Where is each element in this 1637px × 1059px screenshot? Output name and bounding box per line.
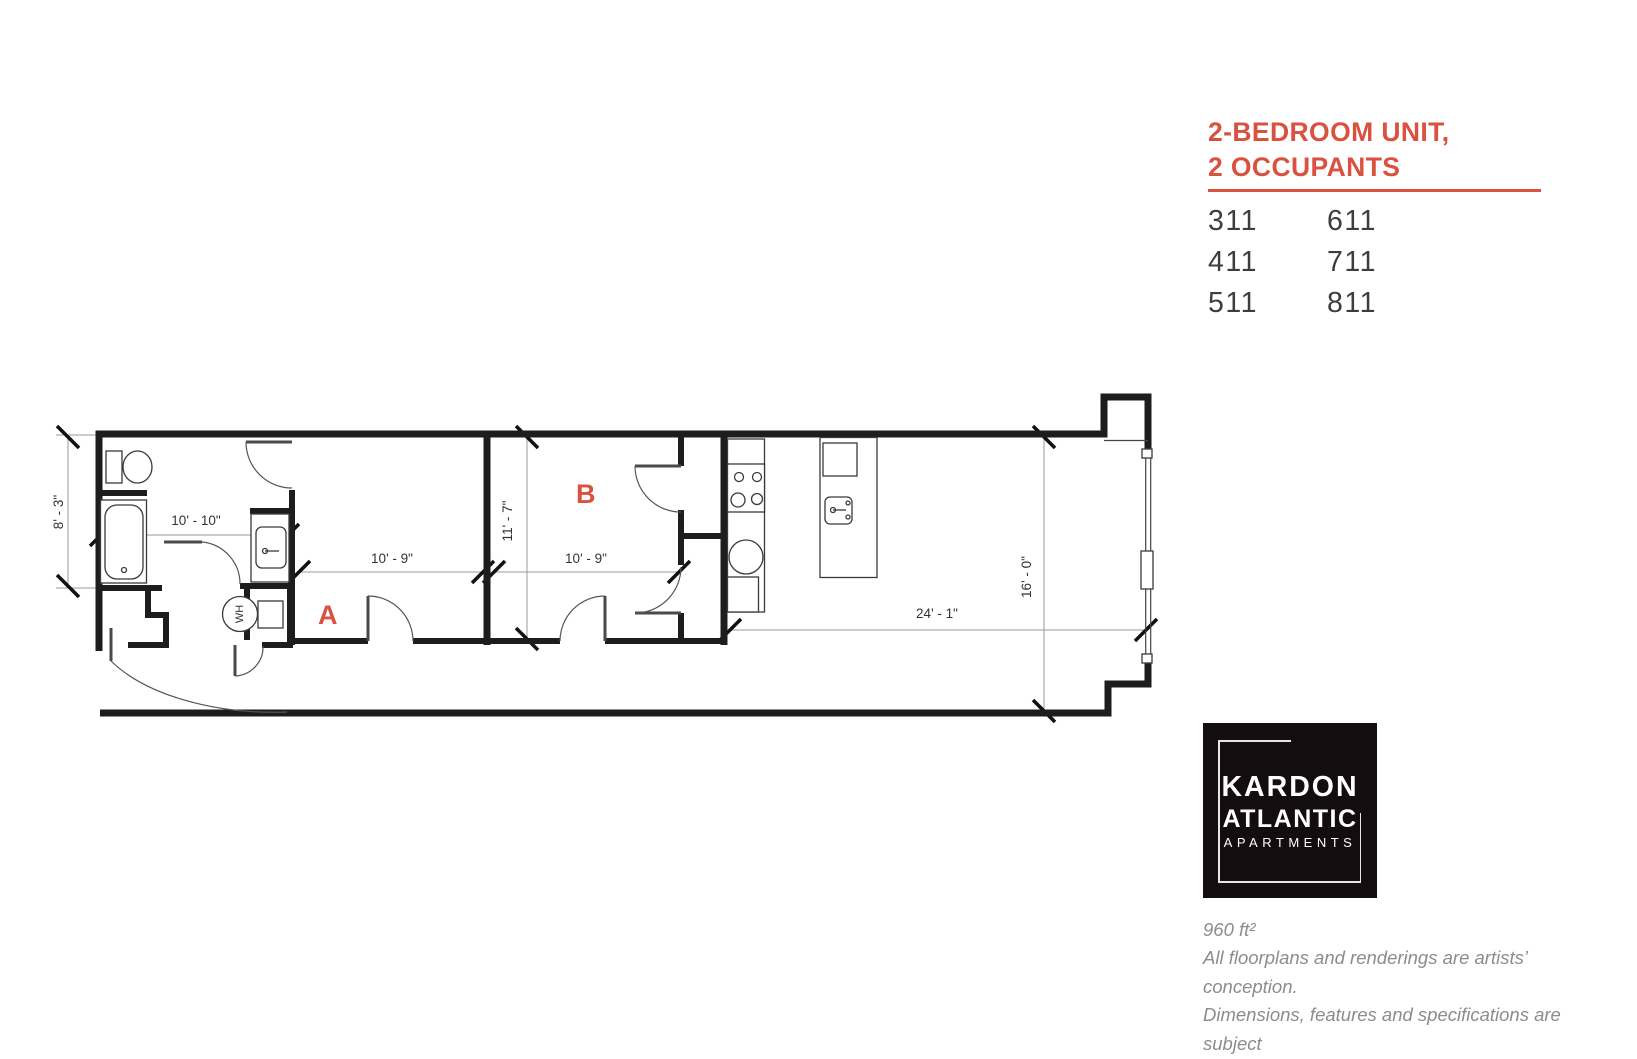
unit-number: 311	[1208, 201, 1327, 242]
unit-number: 811	[1327, 283, 1468, 324]
dim-bath-height: 8' - 3"	[51, 495, 66, 530]
footer-notes: 960 ft² All floorplans and renderings ar…	[1203, 916, 1623, 1059]
dim-bedroom-b-width: 10' - 9"	[565, 551, 607, 566]
logo-name-line-1: KARDON	[1203, 771, 1377, 804]
disclaimer-line-2: Dimensions, features and specifications …	[1203, 1001, 1623, 1058]
dim-bedroom-a-width: 10' - 9"	[371, 551, 413, 566]
unit-number: 511	[1208, 283, 1327, 324]
unit-number-list: 311 611 411 711 511 811	[1208, 201, 1468, 324]
water-heater-fixture: WH	[223, 597, 284, 632]
window-mullion	[1142, 654, 1152, 663]
doors	[111, 442, 681, 712]
unit-number: 711	[1327, 242, 1468, 283]
bathroom-sink-fixture	[251, 514, 289, 582]
unit-number: 611	[1327, 201, 1468, 242]
water-heater-label: WH	[234, 605, 246, 623]
dimension-lines	[56, 426, 1157, 722]
window-mullion	[1141, 551, 1153, 589]
disclaimer-line-1: All floorplans and renderings are artist…	[1203, 944, 1623, 1001]
room-b-label: B	[576, 479, 596, 509]
kitchen-counter	[728, 439, 765, 612]
title-underline	[1208, 189, 1541, 192]
dim-living-depth: 16' - 0"	[1019, 556, 1034, 598]
refrigerator-fixture	[823, 443, 857, 476]
logo-frame	[1218, 881, 1361, 883]
logo-name-line-3: APARTMENTS	[1203, 835, 1377, 850]
room-a-label: A	[318, 600, 338, 630]
title-line-2: 2 OCCUPANTS	[1208, 150, 1450, 185]
logo-frame	[1218, 740, 1291, 742]
area-label: 960 ft²	[1203, 916, 1623, 944]
toilet-fixture	[106, 451, 152, 483]
bathtub-fixture	[101, 500, 147, 583]
dimension-labels: 8' - 3" 10' - 10" 10' - 9" 11' - 7" 10' …	[51, 495, 1034, 621]
dim-bath-width: 10' - 10"	[171, 513, 221, 528]
kitchen-island	[820, 438, 877, 578]
page-title: 2-BEDROOM UNIT, 2 OCCUPANTS	[1208, 115, 1450, 184]
dim-bedroom-b-depth: 11' - 7"	[500, 500, 515, 541]
title-line-1: 2-BEDROOM UNIT,	[1208, 115, 1450, 150]
dim-living-length: 24' - 1"	[916, 606, 958, 621]
kardon-atlantic-logo: KARDON ATLANTIC APARTMENTS	[1203, 723, 1377, 898]
unit-number: 411	[1208, 242, 1327, 283]
floorplan-page: WH 8' - 3" 10' - 10" 10' - 9"	[0, 0, 1637, 1059]
logo-name-line-2: ATLANTIC	[1203, 805, 1377, 834]
window-mullion	[1142, 449, 1152, 458]
kitchen-round-fixture	[729, 540, 763, 574]
